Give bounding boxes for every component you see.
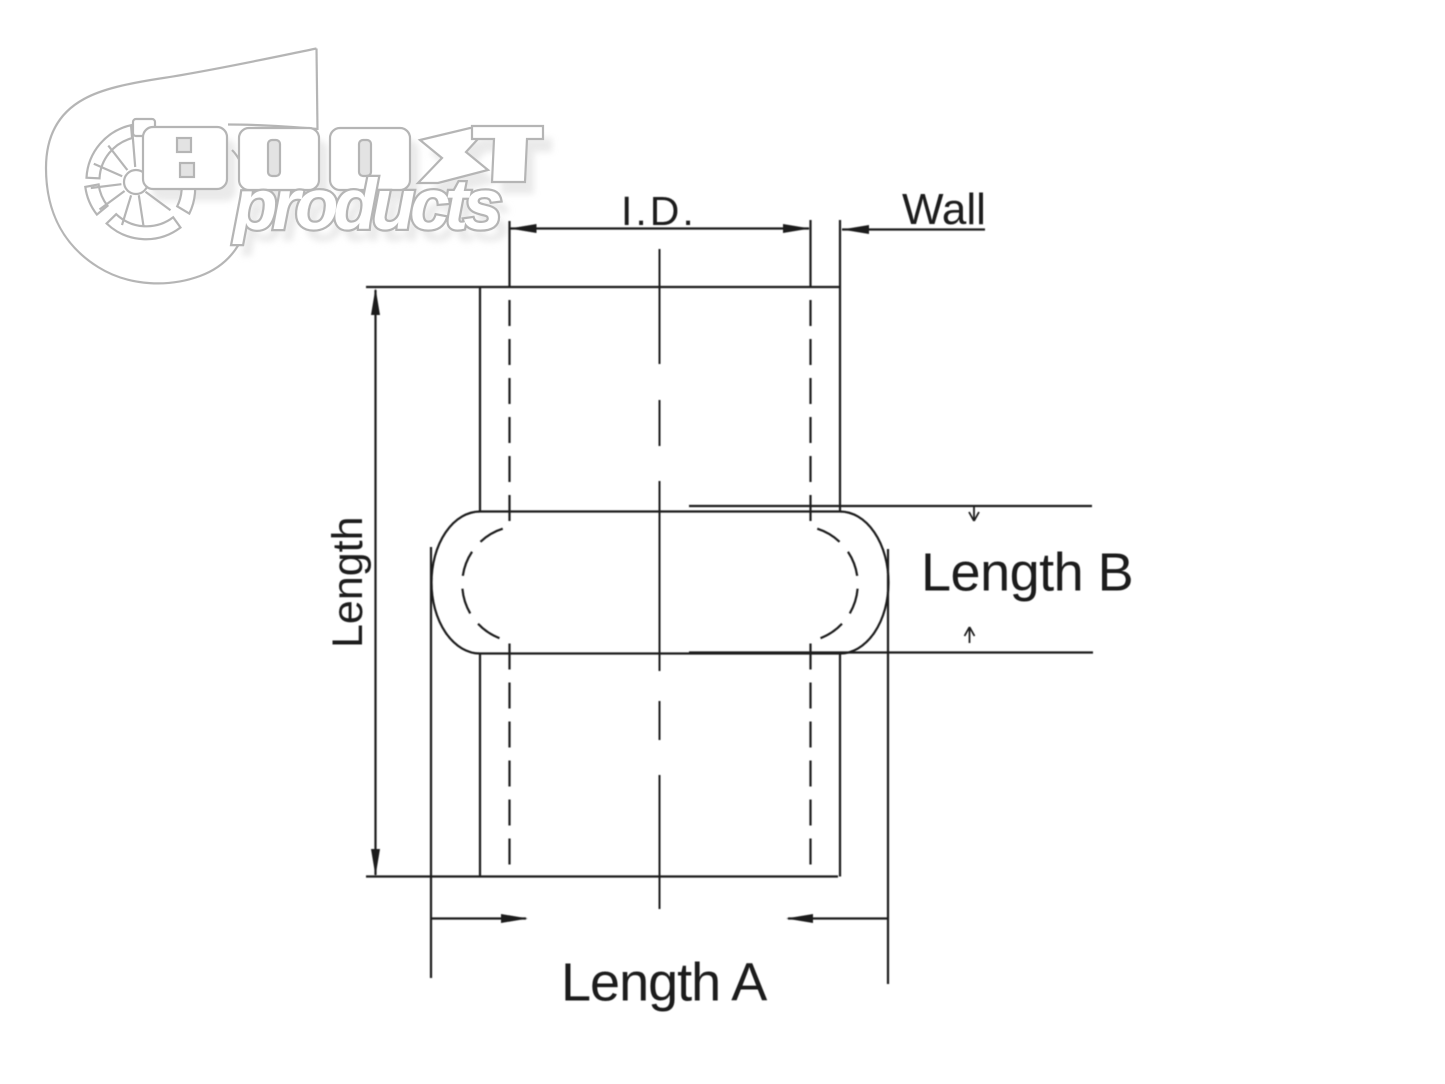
svg-text:Length B: Length B <box>921 543 1133 603</box>
svg-text:Length: Length <box>324 516 372 648</box>
svg-text:products: products <box>232 166 501 245</box>
svg-text:I.D.: I.D. <box>621 188 697 234</box>
svg-text:Length A: Length A <box>561 953 767 1013</box>
svg-text:Wall: Wall <box>902 185 986 234</box>
